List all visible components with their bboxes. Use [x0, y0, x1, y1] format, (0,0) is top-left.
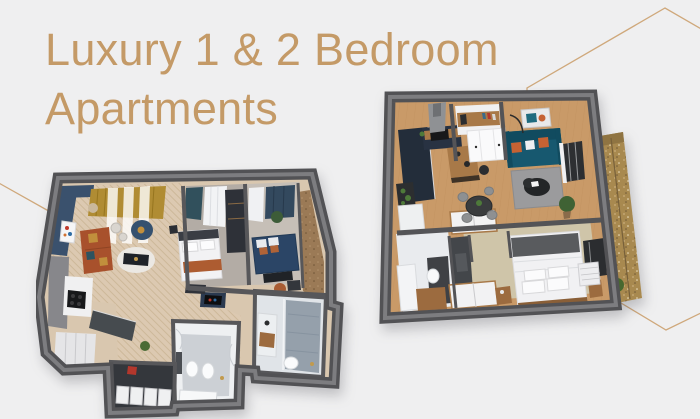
floor-plant — [559, 196, 575, 212]
bar-stool — [479, 165, 489, 175]
tv-wall — [200, 292, 226, 308]
living-window — [563, 141, 585, 182]
floor-plan-one-bedroom — [370, 86, 670, 332]
floor-plan-two-bedroom — [36, 164, 348, 419]
floor-plant — [140, 341, 150, 351]
bathroom — [396, 230, 455, 312]
wall-art — [60, 221, 76, 243]
hero-banner: Luxury 1 & 2 Bedroom Apartments — [0, 0, 700, 419]
floor-lamp — [88, 203, 98, 213]
title-line-1: Luxury 1 & 2 Bedroom — [45, 20, 499, 79]
shower-bathroom — [254, 291, 326, 377]
nightstand — [495, 286, 512, 305]
marble-bathroom — [173, 321, 239, 407]
double-bed — [510, 231, 588, 311]
plant — [271, 211, 283, 223]
storage-room — [111, 362, 175, 413]
